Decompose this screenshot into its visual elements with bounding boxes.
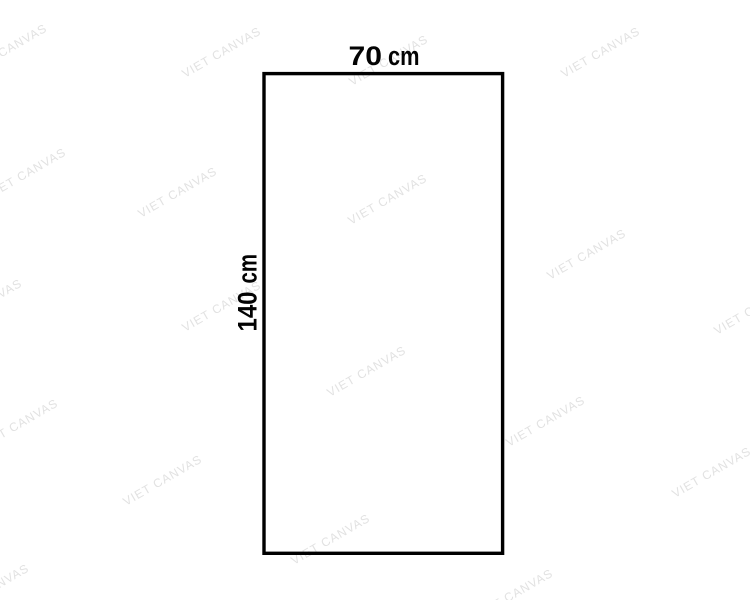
svg-text:140cm: 140cm bbox=[233, 254, 263, 332]
